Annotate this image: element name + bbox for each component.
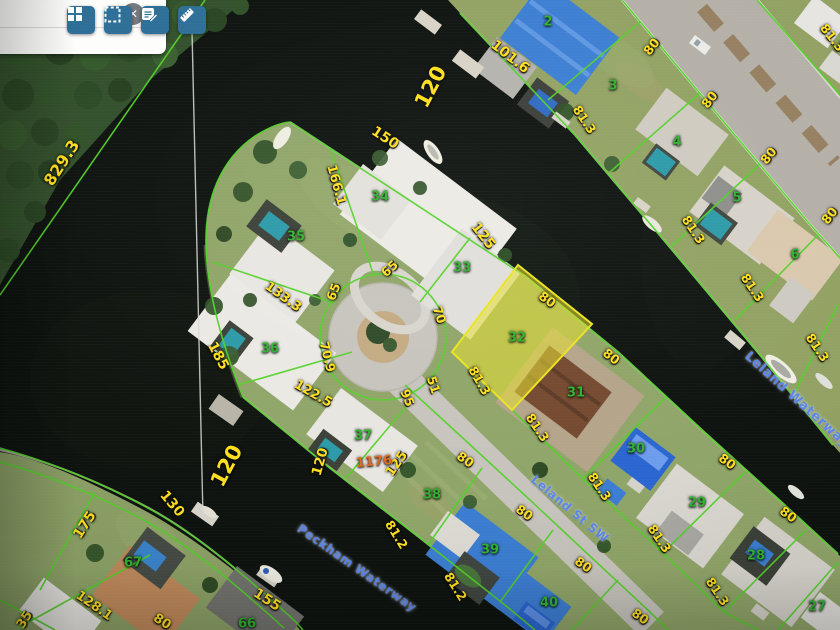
gis-map-app: 2345627282930313233343536373839406667829… xyxy=(0,0,840,630)
basemap-grid-button[interactable] xyxy=(67,6,95,34)
ruler-icon xyxy=(178,6,196,24)
select-extent-button[interactable] xyxy=(104,6,132,34)
note-edit-icon xyxy=(141,6,158,23)
map-canvas[interactable] xyxy=(0,0,840,630)
edit-note-button[interactable] xyxy=(141,6,169,34)
measure-button[interactable] xyxy=(178,6,206,34)
grid-icon xyxy=(67,6,83,22)
marquee-select-icon xyxy=(104,6,121,23)
